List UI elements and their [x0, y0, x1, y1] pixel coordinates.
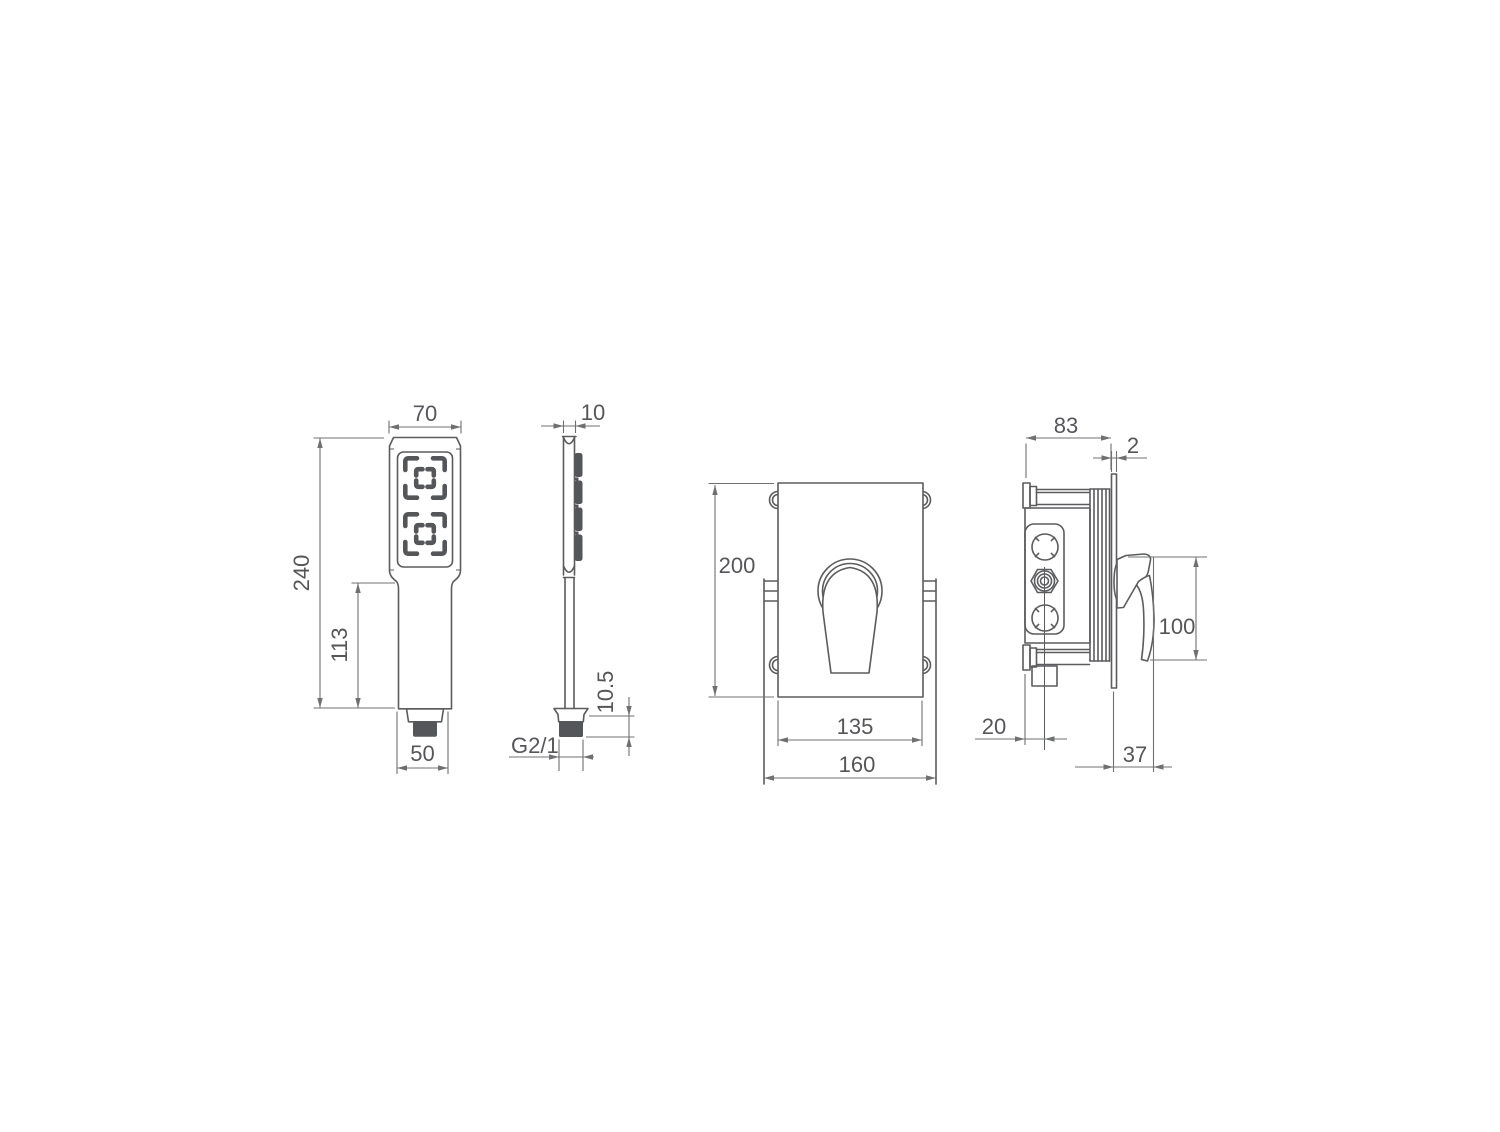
- dimension-handle-width: 50: [397, 712, 448, 775]
- top-inlet-port: [1023, 483, 1090, 508]
- technical-drawing-canvas: 70 240 113 50: [0, 0, 1500, 1132]
- dim-label-outlet-offset: 20: [982, 714, 1006, 739]
- spray-face-side-segments: [575, 453, 583, 561]
- mixer-front-view: 200 135 160: [709, 483, 937, 784]
- dimension-total-height: 240: [289, 438, 395, 708]
- thread-connector: [413, 722, 437, 737]
- connector-nut: [407, 709, 444, 722]
- side-profile-outline: [563, 437, 577, 709]
- dim-label-box-width: 160: [839, 752, 876, 777]
- hand-shower-side-view: 10 10.5 G2/1: [509, 400, 635, 771]
- lever-blade-side: [1137, 576, 1155, 662]
- dimension-box-width: 160: [764, 752, 936, 781]
- dimension-handle-length: 113: [327, 583, 395, 708]
- dimension-plate-width: 135: [778, 701, 922, 747]
- dim-label-thickness: 10: [581, 400, 605, 425]
- dim-label-body-depth: 83: [1054, 413, 1078, 438]
- dim-label-connector-height: 10.5: [593, 671, 618, 714]
- hand-shower-outline: [390, 438, 461, 709]
- connector-nut-side: [554, 709, 588, 722]
- dim-label-handle-length: 113: [327, 627, 352, 662]
- dim-label-plate-height: 200: [719, 553, 756, 578]
- thread-callout: G2/1: [509, 733, 594, 771]
- thread-connector-side: [559, 722, 583, 737]
- dim-label-plate-width: 135: [837, 714, 874, 739]
- dimension-outlet-offset: 20: [975, 674, 1067, 745]
- dim-label-thread: G2/1: [511, 733, 559, 758]
- port-circle-top: [1032, 534, 1058, 560]
- dim-label-total-height: 240: [289, 555, 314, 592]
- mixer-side-view: 83 2 100 20: [975, 413, 1207, 772]
- dim-label-handle-height: 100: [1159, 614, 1196, 639]
- dim-label-plate-thickness: 2: [1127, 433, 1139, 458]
- mounting-flange-stack: [1090, 489, 1110, 661]
- dimension-head-width: 70: [389, 401, 461, 434]
- lever-handle-front: [823, 568, 878, 674]
- cap-seam-ticks: [390, 449, 461, 570]
- dim-label-head-width: 70: [413, 401, 437, 426]
- dim-label-handle-projection: 37: [1123, 742, 1147, 767]
- hand-shower-front-view: 70 240 113 50: [289, 401, 461, 774]
- dimension-connector-height: 10.5: [586, 671, 635, 756]
- dimension-thickness: 10: [541, 400, 605, 433]
- dim-label-handle-width: 50: [410, 741, 434, 766]
- spray-pattern: [405, 458, 444, 553]
- dimension-body-depth: 83: [1026, 413, 1111, 478]
- technical-drawing-page: 70 240 113 50: [0, 0, 1500, 1132]
